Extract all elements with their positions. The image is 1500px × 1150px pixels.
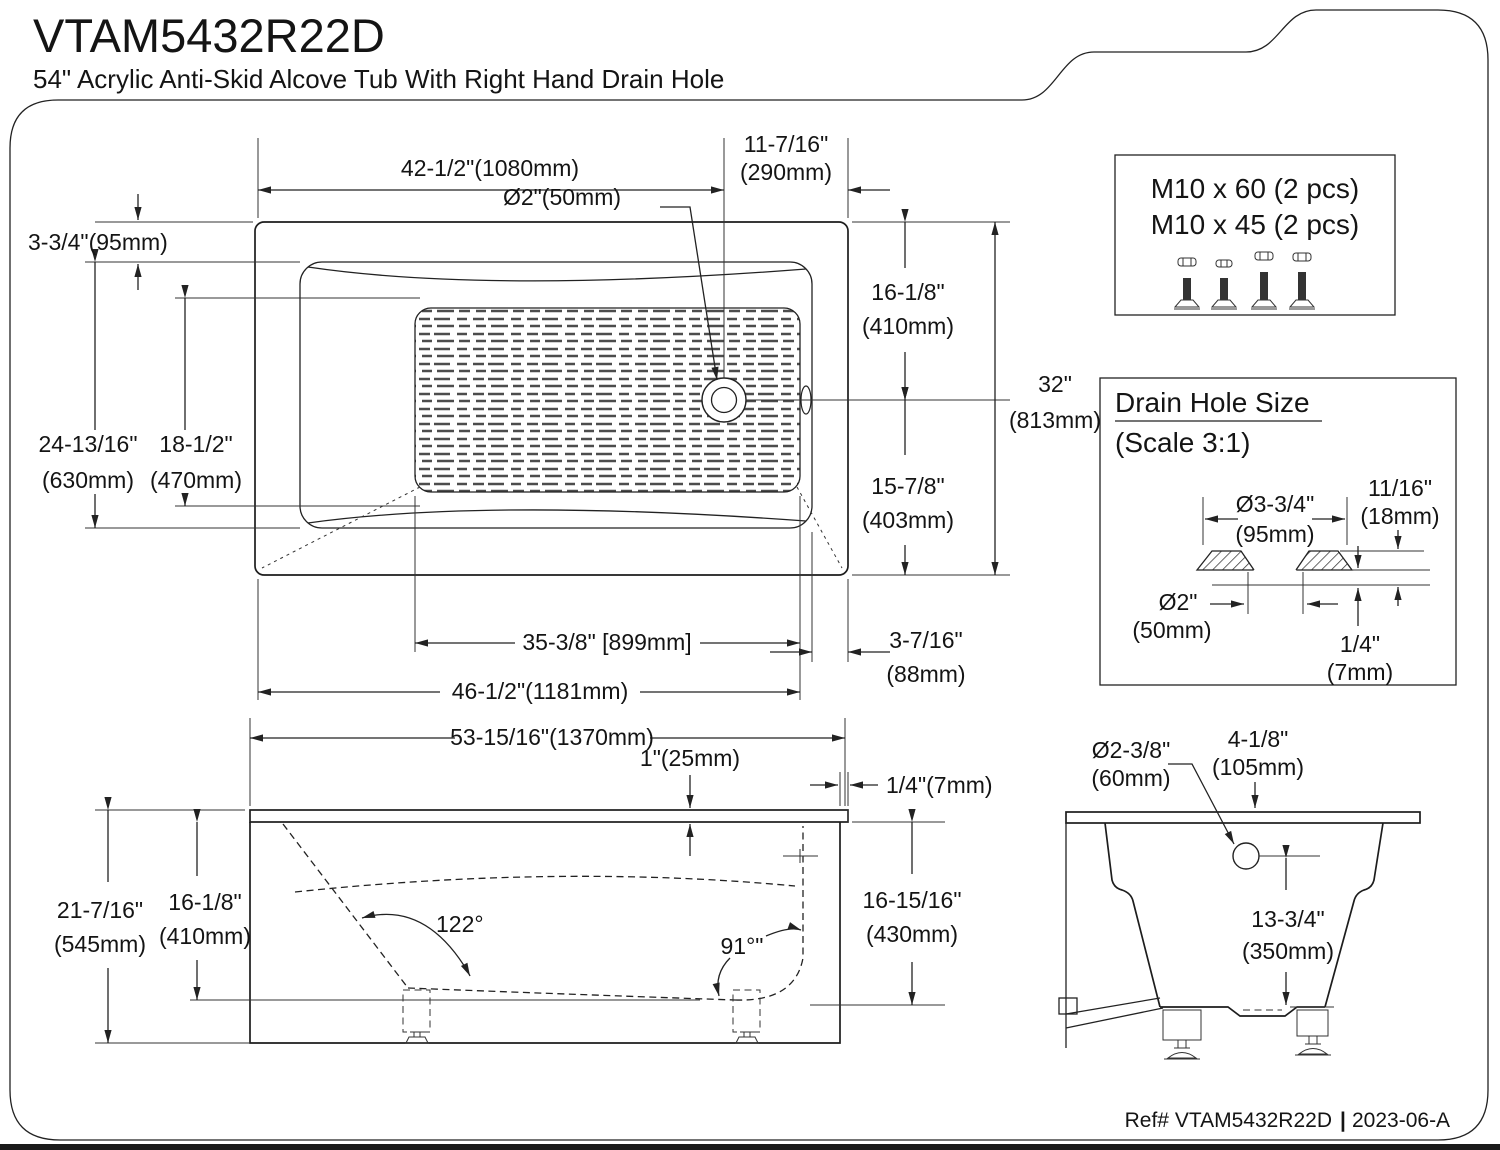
dim-inner-depth-mm: (410mm): [159, 923, 251, 949]
dim-flange-dia-in: Ø3-3/4": [1236, 491, 1314, 517]
side-feet: [403, 990, 760, 1043]
dim-floor-length: 35-3/8" [899mm]: [522, 629, 691, 655]
drain-box-title: Drain Hole Size: [1115, 387, 1310, 418]
dim-drain-from-front-mm: (403mm): [862, 507, 954, 533]
dim-back-angle: 122°: [436, 911, 484, 937]
dim-drain-from-front-in: 15-7/8": [871, 473, 944, 499]
dim-drain-diameter: Ø2"(50mm): [503, 184, 621, 210]
page-title: VTAM5432R22D: [33, 9, 385, 62]
side-view: 53-15/16"(1370mm) 1"(25mm) 1/4"(7mm) 21-…: [54, 718, 993, 1043]
dim-drain-offset-right-in: 11-7/16": [744, 131, 828, 157]
dim-floor-width-in: 18-1/2": [159, 431, 232, 457]
inner-bottom: [408, 988, 735, 1000]
dim-lip-thickness-in: 1/4": [1340, 631, 1380, 657]
dim-end-drain-dia-mm: (60mm): [1091, 765, 1170, 791]
drawing-canvas: VTAM5432R22D 54" Acrylic Anti-Skid Alcov…: [0, 0, 1500, 1150]
side-view-extension-lines: [95, 718, 945, 1043]
nut-icons: [1178, 252, 1311, 267]
dim-front-angle: 91°": [721, 933, 764, 959]
dim-skirt-height-in: 16-15/16": [863, 887, 962, 913]
spec-sheet: VTAM5432R22D 54" Acrylic Anti-Skid Alcov…: [0, 0, 1500, 1150]
dim-hole-dia-in: Ø2": [1159, 589, 1198, 615]
dim-drain-from-back-in: 16-1/8": [871, 279, 944, 305]
inner-rim-curve: [295, 876, 795, 892]
side-rim-bar: [250, 810, 848, 822]
footer-separator: |: [1340, 1109, 1346, 1132]
drain-box-scale: (Scale 3:1): [1115, 427, 1250, 458]
dim-overall-width-mm: (813mm): [1009, 407, 1101, 433]
dim-overall-height-mm: (545mm): [54, 931, 146, 957]
end-body-left: [1105, 823, 1160, 1007]
hardware-box: M10 x 60 (2 pcs) M10 x 45 (2 pcs): [1115, 155, 1395, 315]
dim-skirt-height-mm: (430mm): [866, 921, 958, 947]
dim-overall-height-in: 21-7/16": [57, 897, 143, 923]
drain-detail-box: Drain Hole Size (Scale 3:1) Ø3-: [1100, 378, 1456, 685]
end-body-bottom: [1160, 1007, 1325, 1016]
end-feet: [1163, 1010, 1331, 1059]
dim-rim-overhang: 1/4"(7mm): [886, 772, 993, 798]
corner-line-right: [797, 487, 842, 568]
footer: Ref# VTAM5432R22D | 2023-06-A: [1125, 1109, 1450, 1132]
dim-deck-width: 3-3/4"(95mm): [28, 229, 168, 255]
end-view-dimension-lines: [1168, 764, 1334, 1007]
dim-end-drain-height-in: 13-3/4": [1251, 906, 1324, 932]
page-subtitle: 54" Acrylic Anti-Skid Alcove Tub With Ri…: [33, 64, 724, 94]
rim-contour-top: [308, 267, 806, 281]
end-body-right: [1325, 823, 1383, 1007]
dim-end-drain-offset-in: 4-1/8": [1228, 726, 1289, 752]
rim-contour-bottom: [308, 510, 806, 523]
dim-flange-height-in: 11/16": [1368, 475, 1432, 501]
dim-rim-thickness: 1"(25mm): [640, 745, 740, 771]
bottom-edge-bar: [0, 1144, 1500, 1150]
dim-hole-dia-mm: (50mm): [1132, 617, 1211, 643]
inner-front-wall: [735, 826, 803, 1000]
dim-drain-offset-right-mm: (290mm): [740, 159, 832, 185]
dim-inner-width-mm: (630mm): [42, 467, 134, 493]
dim-end-deck-mm: (88mm): [886, 661, 965, 687]
dim-drain-offset-left: 42-1/2"(1080mm): [401, 155, 579, 181]
dim-floor-width-mm: (470mm): [150, 467, 242, 493]
dim-end-drain-dia-in: Ø2-3/8": [1092, 737, 1170, 763]
footer-ref: Ref# VTAM5432R22D: [1125, 1109, 1332, 1132]
dim-end-drain-offset-mm: (105mm): [1212, 754, 1304, 780]
end-rim-bar: [1066, 812, 1420, 823]
hardware-line2: M10 x 45 (2 pcs): [1151, 209, 1360, 240]
end-apron: [1059, 823, 1163, 1048]
end-view: Ø2-3/8" (60mm) 4-1/8" (105mm) 13-3/4" (3…: [1059, 726, 1420, 1059]
inner-back-slope: [283, 824, 408, 988]
dim-lip-thickness-mm: (7mm): [1327, 659, 1393, 685]
footer-revision: 2023-06-A: [1352, 1109, 1450, 1132]
hardware-line1: M10 x 60 (2 pcs): [1151, 173, 1360, 204]
end-drain-hole: [1233, 843, 1259, 869]
top-view: 42-1/2"(1080mm) 11-7/16" (290mm) Ø2"(50m…: [28, 131, 1101, 704]
bolt-icons: [1174, 272, 1315, 309]
dim-inner-depth-in: 16-1/8": [168, 889, 241, 915]
dim-drain-from-back-mm: (410mm): [862, 313, 954, 339]
dim-end-deck-in: 3-7/16": [889, 627, 962, 653]
dim-overall-width-in: 32": [1038, 371, 1072, 397]
dim-end-drain-height-mm: (350mm): [1242, 938, 1334, 964]
dim-flange-height-mm: (18mm): [1360, 503, 1439, 529]
header: VTAM5432R22D 54" Acrylic Anti-Skid Alcov…: [33, 9, 724, 94]
dim-inner-width-in: 24-13/16": [39, 431, 138, 457]
dim-flange-dia-mm: (95mm): [1235, 521, 1314, 547]
drain-hole: [702, 378, 746, 422]
dim-overall-length: 53-15/16"(1370mm): [450, 724, 654, 750]
dim-inner-length: 46-1/2"(1181mm): [452, 678, 628, 704]
